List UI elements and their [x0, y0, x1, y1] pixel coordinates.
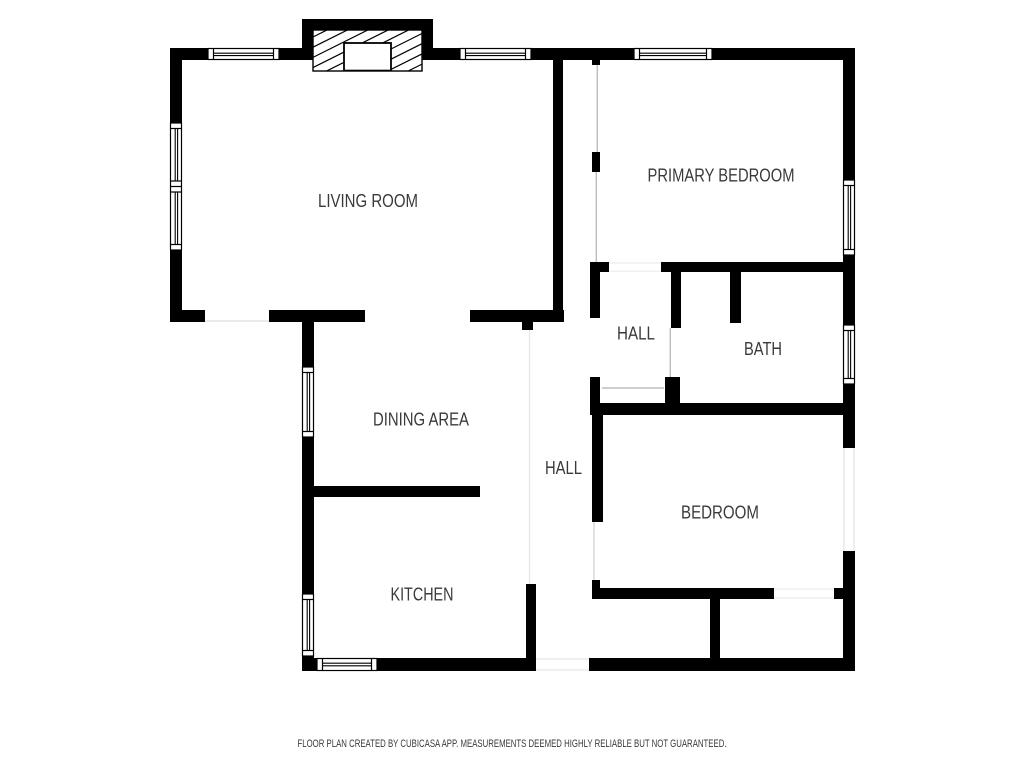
- svg-text:PRIMARY BEDROOM: PRIMARY BEDROOM: [648, 166, 795, 186]
- svg-text:HALL: HALL: [545, 458, 582, 478]
- svg-text:FLOOR PLAN CREATED BY CUBICASA: FLOOR PLAN CREATED BY CUBICASA APP. MEAS…: [298, 738, 727, 750]
- svg-text:HALL: HALL: [617, 324, 655, 344]
- svg-text:BATH: BATH: [744, 339, 782, 359]
- svg-text:KITCHEN: KITCHEN: [391, 585, 454, 605]
- svg-text:LIVING ROOM: LIVING ROOM: [318, 191, 418, 211]
- svg-text:BEDROOM: BEDROOM: [681, 503, 759, 523]
- svg-text:DINING AREA: DINING AREA: [373, 410, 469, 430]
